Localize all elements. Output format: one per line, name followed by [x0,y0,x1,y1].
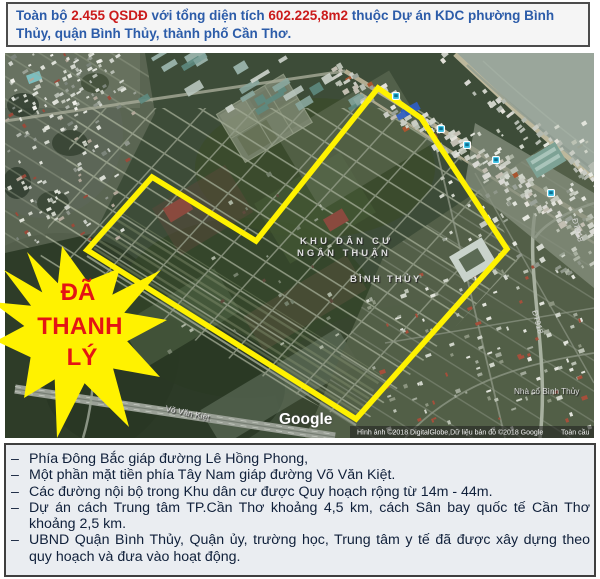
svg-text:Toàn cầu: Toàn cầu [561,428,590,437]
svg-text:BÌNH THỦY: BÌNH THỦY [350,273,422,285]
svg-text:Google: Google [279,411,333,428]
svg-text:THANH: THANH [37,313,123,340]
svg-text:NGÂN THUẬN: NGÂN THUẬN [297,247,391,259]
svg-text:Hình ảnh ©2018 DigitalGlobe,Dữ: Hình ảnh ©2018 DigitalGlobe,Dữ liệu bản … [357,428,543,437]
svg-text:LÝ: LÝ [67,343,98,371]
svg-text:ĐÃ: ĐÃ [61,278,96,306]
svg-text:KHU DÂN CƯ: KHU DÂN CƯ [300,235,393,247]
svg-text:Nhà cổ Bình Thủy: Nhà cổ Bình Thủy [514,386,580,396]
